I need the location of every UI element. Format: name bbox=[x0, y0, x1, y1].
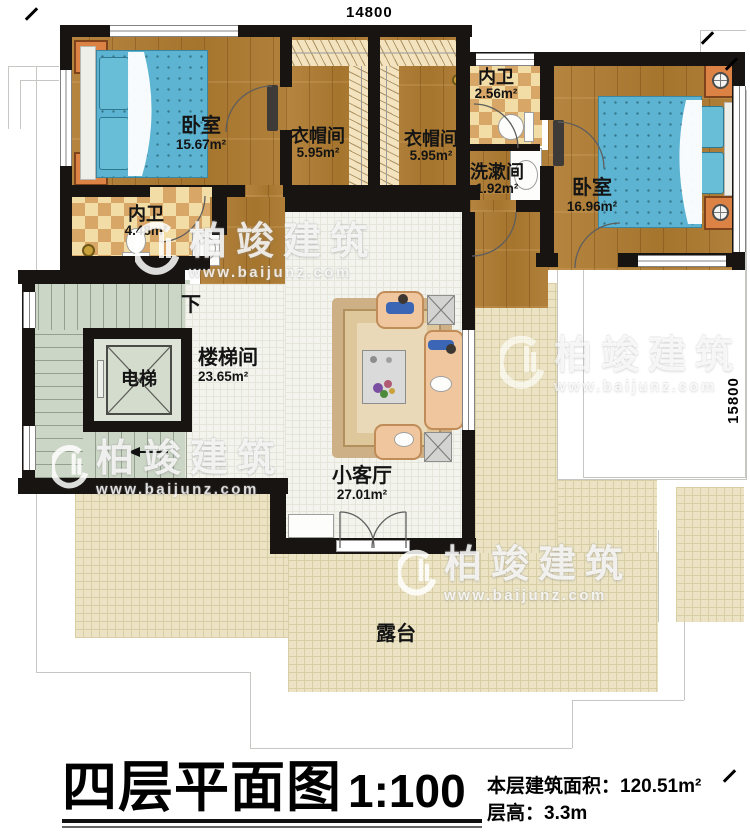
wall bbox=[368, 37, 380, 199]
elevator-counterweight bbox=[97, 360, 104, 398]
shoe-cabinet bbox=[288, 514, 334, 538]
side-table bbox=[427, 295, 455, 325]
room-label-living: 小客厅 27.01m² bbox=[312, 466, 412, 502]
elevator-shaft-wall bbox=[181, 328, 192, 432]
room-label-bath-left: 内卫 4.48m² bbox=[96, 205, 196, 239]
room-area: 4.48m² bbox=[96, 224, 196, 239]
door-leaf bbox=[553, 120, 564, 166]
window bbox=[462, 330, 475, 430]
room-area: 5.95m² bbox=[381, 149, 481, 164]
window bbox=[23, 292, 36, 328]
floor-area-label: 本层建筑面积： bbox=[487, 776, 620, 797]
terrace-floor bbox=[557, 480, 657, 552]
roof-outline bbox=[700, 30, 746, 31]
window bbox=[60, 70, 72, 166]
bed-pillow bbox=[700, 152, 724, 194]
dimension-width: 14800 bbox=[346, 4, 393, 21]
roof-outline bbox=[572, 700, 573, 748]
window bbox=[476, 53, 534, 66]
stair-direction-label: 下 bbox=[180, 295, 202, 317]
door-opening bbox=[150, 187, 212, 197]
roof-outline bbox=[20, 80, 59, 129]
room-name: 内卫 bbox=[446, 68, 546, 87]
room-label-closet-2: 衣帽间 5.95m² bbox=[381, 130, 481, 164]
bed-pillow bbox=[99, 117, 129, 170]
wall bbox=[270, 478, 286, 554]
stair-flight-left bbox=[30, 330, 83, 478]
wall bbox=[462, 430, 475, 552]
dimension-tick bbox=[701, 31, 714, 44]
door-leaf bbox=[267, 85, 278, 131]
roof-outline bbox=[36, 672, 250, 673]
elevator-shaft-wall bbox=[83, 328, 192, 339]
room-label-bedroom-1: 卧室 15.67m² bbox=[141, 116, 261, 152]
room-area: 27.01m² bbox=[312, 488, 412, 503]
elevator-shaft-wall bbox=[83, 421, 192, 432]
wall bbox=[60, 256, 210, 270]
table-decor bbox=[370, 356, 377, 363]
room-label-terrace: 露台 bbox=[356, 624, 436, 646]
terrace-floor bbox=[288, 552, 658, 692]
entry-threshold bbox=[336, 540, 410, 552]
room-name: 衣帽间 bbox=[268, 127, 368, 146]
person-figure-head bbox=[398, 294, 408, 304]
room-name: 卧室 bbox=[532, 178, 652, 200]
wall bbox=[18, 478, 288, 494]
stair-flight-top bbox=[38, 282, 190, 330]
room-name: 露台 bbox=[356, 624, 436, 646]
drawing-scale: 1:100 bbox=[348, 768, 466, 814]
roof-outline bbox=[658, 530, 659, 622]
terrace-floor bbox=[676, 487, 744, 622]
room-label-stairwell: 楼梯间 23.65m² bbox=[198, 348, 308, 384]
roof-outline bbox=[250, 748, 572, 749]
room-name: 电梯 bbox=[104, 370, 174, 389]
floor-area-value: 120.51m² bbox=[620, 776, 701, 797]
room-area: 2.56m² bbox=[446, 87, 546, 102]
wall bbox=[536, 253, 558, 267]
elevator-shaft-wall bbox=[83, 328, 94, 432]
room-label-elevator: 电梯 bbox=[104, 370, 174, 389]
room-name: 内卫 bbox=[96, 205, 196, 224]
window bbox=[638, 255, 726, 267]
room-area: 16.96m² bbox=[532, 200, 652, 215]
terrace-floor bbox=[475, 283, 557, 553]
door-opening bbox=[245, 185, 283, 197]
toilet-bowl bbox=[498, 114, 524, 140]
roof-outline bbox=[684, 622, 685, 700]
title-underline bbox=[62, 819, 482, 823]
wall bbox=[462, 212, 475, 330]
toilet-tank bbox=[524, 112, 534, 142]
person-figure-head bbox=[446, 344, 456, 354]
terrace-floor bbox=[75, 493, 288, 638]
wall bbox=[18, 270, 185, 284]
room-name: 楼梯间 bbox=[198, 348, 308, 370]
window bbox=[23, 426, 36, 470]
floor-height-line: 层高：3.3m bbox=[487, 798, 587, 825]
room-name: 卧室 bbox=[141, 116, 261, 138]
room-name: 衣帽间 bbox=[381, 130, 481, 149]
wall bbox=[212, 185, 227, 235]
coffee-table bbox=[362, 350, 406, 404]
closet-2-rail bbox=[374, 40, 466, 66]
bed-headboard bbox=[80, 46, 96, 180]
lamp-icon bbox=[712, 72, 729, 89]
stair-flight-bottom bbox=[95, 432, 190, 478]
roof-outline bbox=[250, 672, 251, 748]
room-name: 小客厅 bbox=[312, 466, 412, 488]
closet-1-rail bbox=[286, 40, 374, 66]
title-underline bbox=[62, 826, 482, 828]
floor-height-label: 层高： bbox=[487, 803, 544, 824]
dimension-height: 15800 bbox=[725, 377, 742, 424]
sofa-cushion bbox=[394, 432, 414, 447]
room-area: 5.95m² bbox=[268, 146, 368, 161]
side-table bbox=[424, 432, 452, 462]
room-label-closet-1: 衣帽间 5.95m² bbox=[268, 127, 368, 161]
room-label-bedroom-2: 卧室 16.96m² bbox=[532, 178, 652, 214]
floor-height-value: 3.3m bbox=[544, 803, 587, 824]
table-decor bbox=[386, 357, 392, 363]
bed-pillow bbox=[700, 106, 724, 148]
lamp-icon bbox=[712, 204, 729, 221]
wall bbox=[280, 37, 292, 87]
sofa-cushion bbox=[430, 376, 452, 392]
floor-area-line: 本层建筑面积：120.51m² bbox=[487, 771, 701, 798]
window bbox=[733, 86, 746, 252]
window bbox=[110, 25, 238, 37]
bed-pillow bbox=[99, 57, 129, 110]
room-label-bath-top: 内卫 2.56m² bbox=[446, 68, 546, 102]
room-area: 15.67m² bbox=[141, 138, 261, 153]
roof-outline bbox=[572, 700, 684, 701]
dimension-tick bbox=[25, 7, 38, 20]
person-figure bbox=[386, 302, 414, 314]
dimension-tick bbox=[723, 769, 736, 782]
room-area: 23.65m² bbox=[198, 370, 308, 385]
door-opening bbox=[470, 200, 516, 212]
drawing-title: 四层平面图 bbox=[62, 760, 342, 815]
floor-plan-canvas: 卧室 15.67m² 衣帽间 5.95m² 衣帽间 5.95m² 内卫 2.56… bbox=[0, 0, 750, 835]
